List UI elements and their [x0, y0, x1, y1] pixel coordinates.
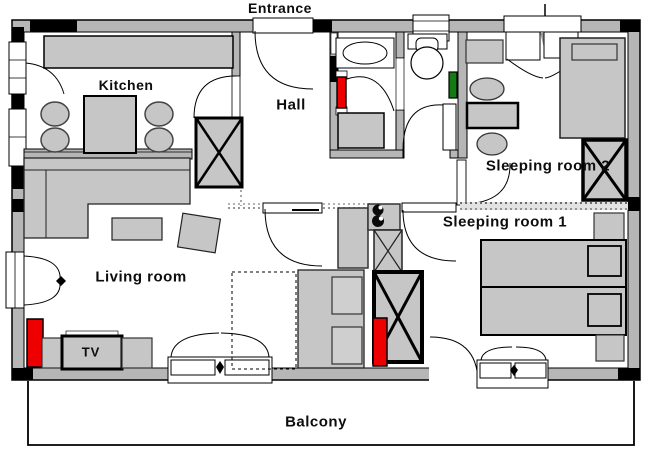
wc-radiator: [337, 77, 346, 108]
nightstand: [594, 213, 624, 240]
coffee-table: [112, 218, 162, 240]
kitchen-door-leaf: [232, 76, 240, 118]
living-room-radiator: [27, 319, 43, 367]
living-room-label: Living room: [95, 269, 186, 286]
corridor-radiator: [373, 318, 387, 366]
kitchen-label: Kitchen: [99, 77, 154, 93]
kitchen-table: [84, 96, 136, 153]
washing-machine: [338, 113, 384, 148]
balcony-label: Balcony: [285, 414, 347, 431]
cabinet-with-knobs: [368, 204, 400, 230]
floor-plan: Entrance Kitchen Hall Sleeping room 2 Sl…: [0, 0, 650, 450]
tv-label: TV: [82, 345, 101, 360]
tall-cabinet: [338, 208, 368, 268]
kitchen-counter: [44, 36, 233, 68]
stool: [477, 133, 507, 155]
sofa-cushion: [332, 327, 362, 364]
nightstand: [596, 335, 624, 361]
towel-rail: [449, 72, 457, 98]
small-wardrobe: [374, 230, 402, 272]
entrance-label: Entrance: [248, 0, 312, 16]
sleeping-room-1-label: Sleeping room 1: [443, 214, 567, 231]
bathroom-door-leaf: [443, 104, 456, 150]
pillow: [588, 294, 621, 326]
hall-wardrobe: [196, 118, 242, 187]
sleeping-room-2-door-leaf: [457, 160, 466, 205]
armchair: [178, 213, 221, 253]
desk: [467, 103, 518, 128]
sleeping-room-2-label: Sleeping room 2: [486, 158, 610, 175]
hall-label: Hall: [276, 97, 306, 114]
pillow: [588, 246, 621, 276]
stool: [470, 78, 504, 100]
tv-stand-left: [42, 338, 62, 368]
wc-door-leaf: [396, 58, 404, 110]
tv-stand-right: [122, 338, 152, 368]
sofa-cushion: [332, 277, 362, 314]
pillow: [572, 44, 617, 60]
dresser: [466, 40, 503, 63]
toilet-bowl: [411, 47, 443, 79]
